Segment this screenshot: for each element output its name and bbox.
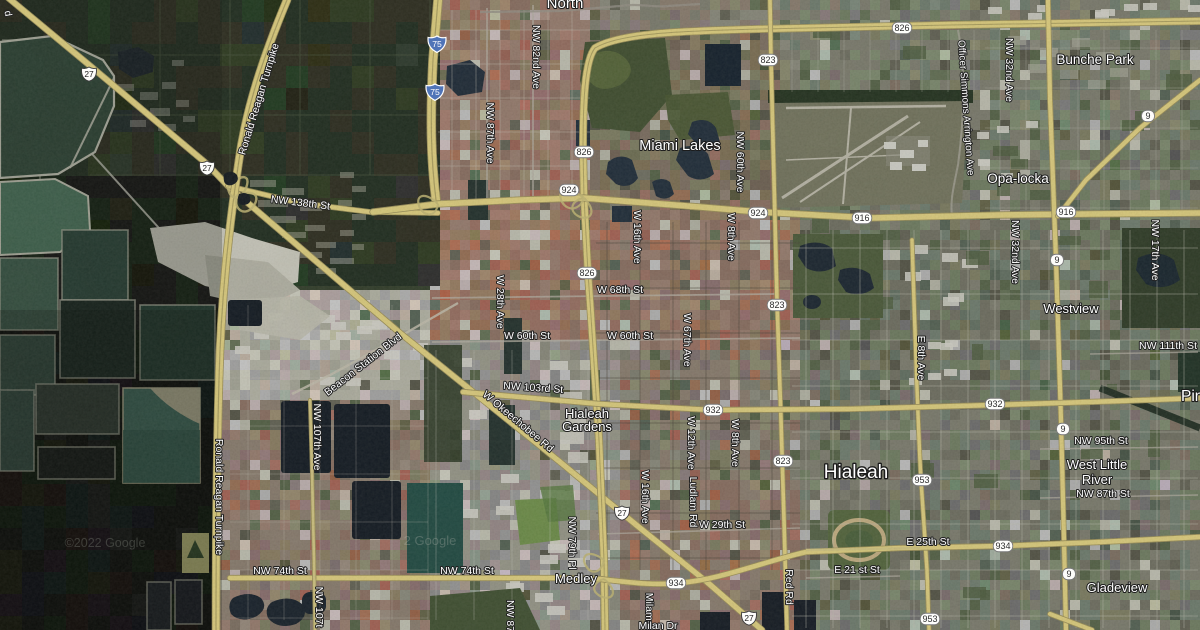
svg-text:NW 17th Ave: NW 17th Ave [1149, 219, 1161, 280]
svg-text:West Little: West Little [1067, 457, 1127, 472]
svg-text:NW 87th St: NW 87th St [1076, 488, 1130, 500]
svg-text:Miami Lakes: Miami Lakes [639, 138, 720, 154]
svg-text:W 28th Ave: W 28th Ave [494, 275, 506, 329]
svg-text:Red Rd: Red Rd [783, 569, 795, 605]
svg-text:27: 27 [617, 508, 627, 518]
svg-text:W 60th St: W 60th St [607, 330, 653, 342]
svg-text:W 29th St: W 29th St [699, 519, 745, 531]
svg-text:27: 27 [202, 163, 212, 173]
svg-text:W 16th Ave: W 16th Ave [631, 210, 643, 264]
svg-text:NW 74th St: NW 74th St [440, 565, 494, 577]
svg-text:932: 932 [987, 399, 1002, 409]
svg-text:NW 87th Ave: NW 87th Ave [484, 102, 496, 163]
svg-text:W 16th Ave: W 16th Ave [639, 470, 651, 524]
svg-text:Opa-locka: Opa-locka [987, 171, 1049, 186]
svg-text:826: 826 [576, 147, 591, 157]
svg-text:NW 111th St: NW 111th St [1139, 340, 1197, 352]
svg-text:Hialeah: Hialeah [824, 462, 888, 483]
svg-text:Gardens: Gardens [562, 419, 612, 434]
svg-text:Pin: Pin [1181, 388, 1200, 405]
svg-text:823: 823 [775, 456, 790, 466]
svg-text:North: North [547, 0, 584, 12]
svg-text:75: 75 [430, 87, 440, 97]
svg-text:W 12th Ave: W 12th Ave [685, 416, 697, 470]
svg-text:934: 934 [668, 578, 683, 588]
svg-text:W 68th St: W 68th St [597, 284, 643, 296]
svg-text:Bunche Park: Bunche Park [1056, 52, 1134, 67]
svg-text:9: 9 [1066, 569, 1071, 579]
svg-text:823: 823 [760, 55, 775, 65]
svg-text:953: 953 [914, 475, 929, 485]
svg-text:Milan Dr: Milan Dr [638, 620, 678, 630]
svg-text:823: 823 [769, 300, 784, 310]
svg-text:2 Google: 2 Google [404, 533, 457, 548]
svg-text:932: 932 [705, 405, 720, 415]
svg-text:W 67th Ave: W 67th Ave [681, 313, 693, 367]
svg-text:River: River [1082, 472, 1113, 487]
svg-text:Westview: Westview [1043, 301, 1099, 316]
svg-text:NW 87: NW 87 [504, 600, 516, 630]
svg-text:9: 9 [1145, 111, 1150, 121]
svg-text:826: 826 [894, 23, 909, 33]
svg-text:©2022 Google: ©2022 Google [65, 536, 146, 550]
svg-text:Medley: Medley [555, 571, 597, 586]
svg-text:9: 9 [1054, 255, 1059, 265]
svg-text:NW 32nd Ave: NW 32nd Ave [1009, 220, 1021, 284]
svg-text:916: 916 [1058, 207, 1073, 217]
svg-text:NW 60th Ave: NW 60th Ave [734, 131, 746, 192]
svg-text:E 21 st St: E 21 st St [834, 564, 880, 576]
svg-text:9: 9 [1060, 424, 1065, 434]
svg-text:27: 27 [84, 69, 94, 79]
svg-text:924: 924 [750, 208, 765, 218]
svg-text:Gladeview: Gladeview [1087, 580, 1148, 595]
svg-text:NW 95th St: NW 95th St [1074, 435, 1128, 447]
svg-text:Ronald Reagan Turnpike: Ronald Reagan Turnpike [213, 439, 225, 555]
svg-text:NW 107th Ave: NW 107th Ave [311, 404, 323, 471]
svg-text:NW 74th St: NW 74th St [253, 565, 307, 577]
svg-text:NW 107t: NW 107t [313, 587, 325, 628]
svg-text:E 8th Ave: E 8th Ave [915, 336, 927, 381]
svg-text:Ludlam Rd: Ludlam Rd [687, 477, 699, 528]
svg-text:NW 79th Pl: NW 79th Pl [566, 516, 578, 569]
svg-text:934: 934 [995, 541, 1010, 551]
svg-text:E 25th St: E 25th St [906, 536, 949, 548]
svg-text:W 60th St: W 60th St [504, 330, 550, 342]
svg-text:W 8th Ave: W 8th Ave [729, 419, 741, 467]
svg-text:924: 924 [561, 185, 576, 195]
svg-text:826: 826 [579, 268, 594, 278]
svg-text:NW 82nd Ave: NW 82nd Ave [530, 25, 542, 89]
svg-text:W 8th Ave: W 8th Ave [725, 213, 737, 261]
svg-text:27: 27 [744, 613, 754, 623]
svg-text:953: 953 [922, 614, 937, 624]
svg-text:916: 916 [854, 213, 869, 223]
svg-text:75: 75 [432, 39, 442, 49]
svg-text:NW 32nd Ave: NW 32nd Ave [1003, 38, 1015, 102]
